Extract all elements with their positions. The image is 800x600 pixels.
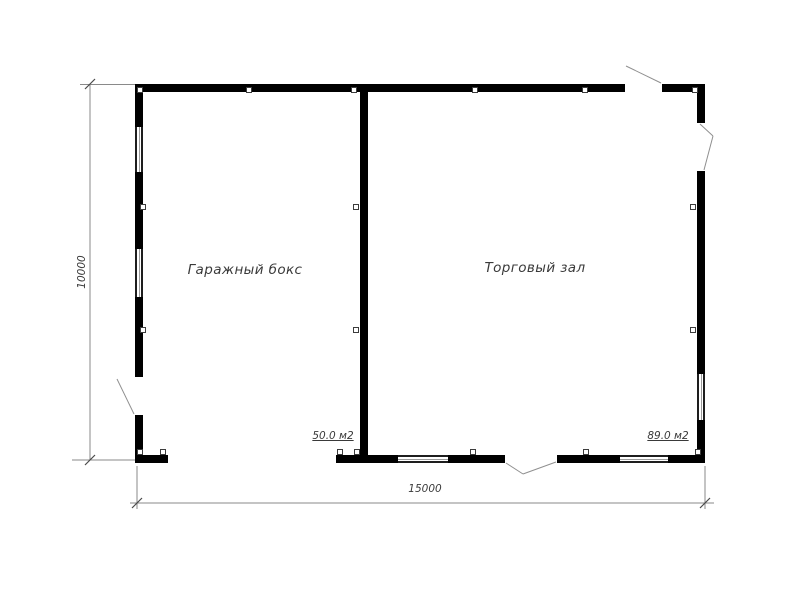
door-swing-left-wall <box>117 379 134 414</box>
door-swing-right-wall <box>700 124 713 136</box>
area-label-garage: 50.0 м2 <box>303 430 363 442</box>
dimension-label-width: 15000 <box>395 483 455 495</box>
floor-plan-canvas: Гаражный бокс Торговый зал 50.0 м2 89.0 … <box>0 0 800 600</box>
room-label-trading-hall: Торговый зал <box>450 260 620 276</box>
area-label-trading-hall: 89.0 м2 <box>638 430 698 442</box>
dimension-label-height: 10000 <box>76 247 88 297</box>
room-label-garage: Гаражный бокс <box>160 262 330 278</box>
door-swing-bottom-wall <box>523 462 556 474</box>
door-swing-right-wall <box>704 136 713 170</box>
annotation-lines-layer <box>0 0 800 600</box>
door-swing-bottom-wall <box>506 463 523 474</box>
door-swing-top-wall <box>626 66 661 83</box>
